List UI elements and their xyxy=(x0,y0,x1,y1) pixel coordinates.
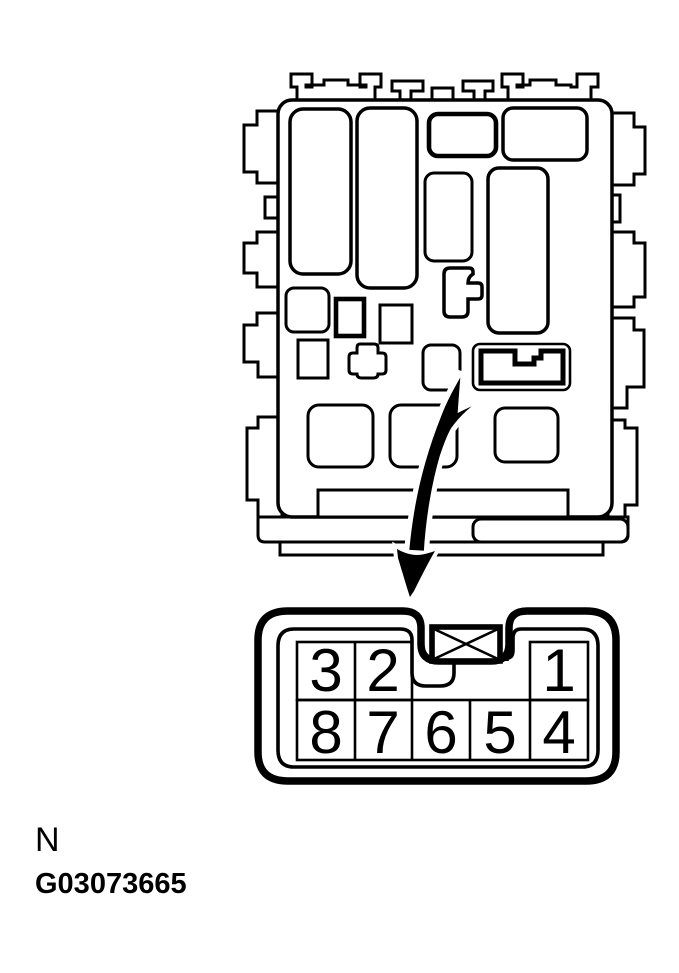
pin-cell-2: 2 xyxy=(366,637,399,704)
pin-cell-3: 3 xyxy=(309,637,342,704)
bottom-plate-right-section xyxy=(473,519,628,542)
fuse-relay-box xyxy=(244,74,645,555)
fuse-slot-small-3 xyxy=(380,305,412,343)
relay-slot-tall-2 xyxy=(357,108,417,288)
keying-notch xyxy=(432,627,500,661)
pin-cell-7: 7 xyxy=(366,699,399,766)
fuse-slot-small-1 xyxy=(286,288,329,332)
pin-cell-8: 8 xyxy=(309,699,342,766)
relay-slot-square-1 xyxy=(308,405,373,467)
figure-label: N xyxy=(35,821,60,859)
wiring-figure-svg: 3 2 1 8 7 6 5 4 N G03073665 xyxy=(0,0,679,973)
pin-cell-4: 4 xyxy=(542,699,575,766)
fuse-slot-small-2 xyxy=(336,299,364,336)
relay-slot-top-right xyxy=(503,108,587,160)
bottom-inner-bar xyxy=(318,490,568,517)
pin-cell-5: 5 xyxy=(483,699,516,766)
relay-slot-tall-1 xyxy=(290,109,351,274)
diagram-page: 3 2 1 8 7 6 5 4 N G03073665 xyxy=(0,0,679,973)
relay-slot-mid-vertical xyxy=(425,173,472,261)
connector-pinout: 3 2 1 8 7 6 5 4 xyxy=(258,611,616,781)
relay-slot-square-3 xyxy=(495,408,558,462)
bottom-plate-lower xyxy=(280,542,603,555)
pin-cell-1: 1 xyxy=(542,637,575,704)
relay-slot-right-tall xyxy=(488,168,548,333)
pin-cell-6: 6 xyxy=(424,699,457,766)
highlighted-relay-slot xyxy=(473,344,570,390)
fuse-slot-small-4 xyxy=(298,340,328,378)
relay-slot-top-middle xyxy=(429,114,496,156)
figure-code: G03073665 xyxy=(35,868,187,900)
fuse-box-bottom-plates xyxy=(258,517,628,555)
